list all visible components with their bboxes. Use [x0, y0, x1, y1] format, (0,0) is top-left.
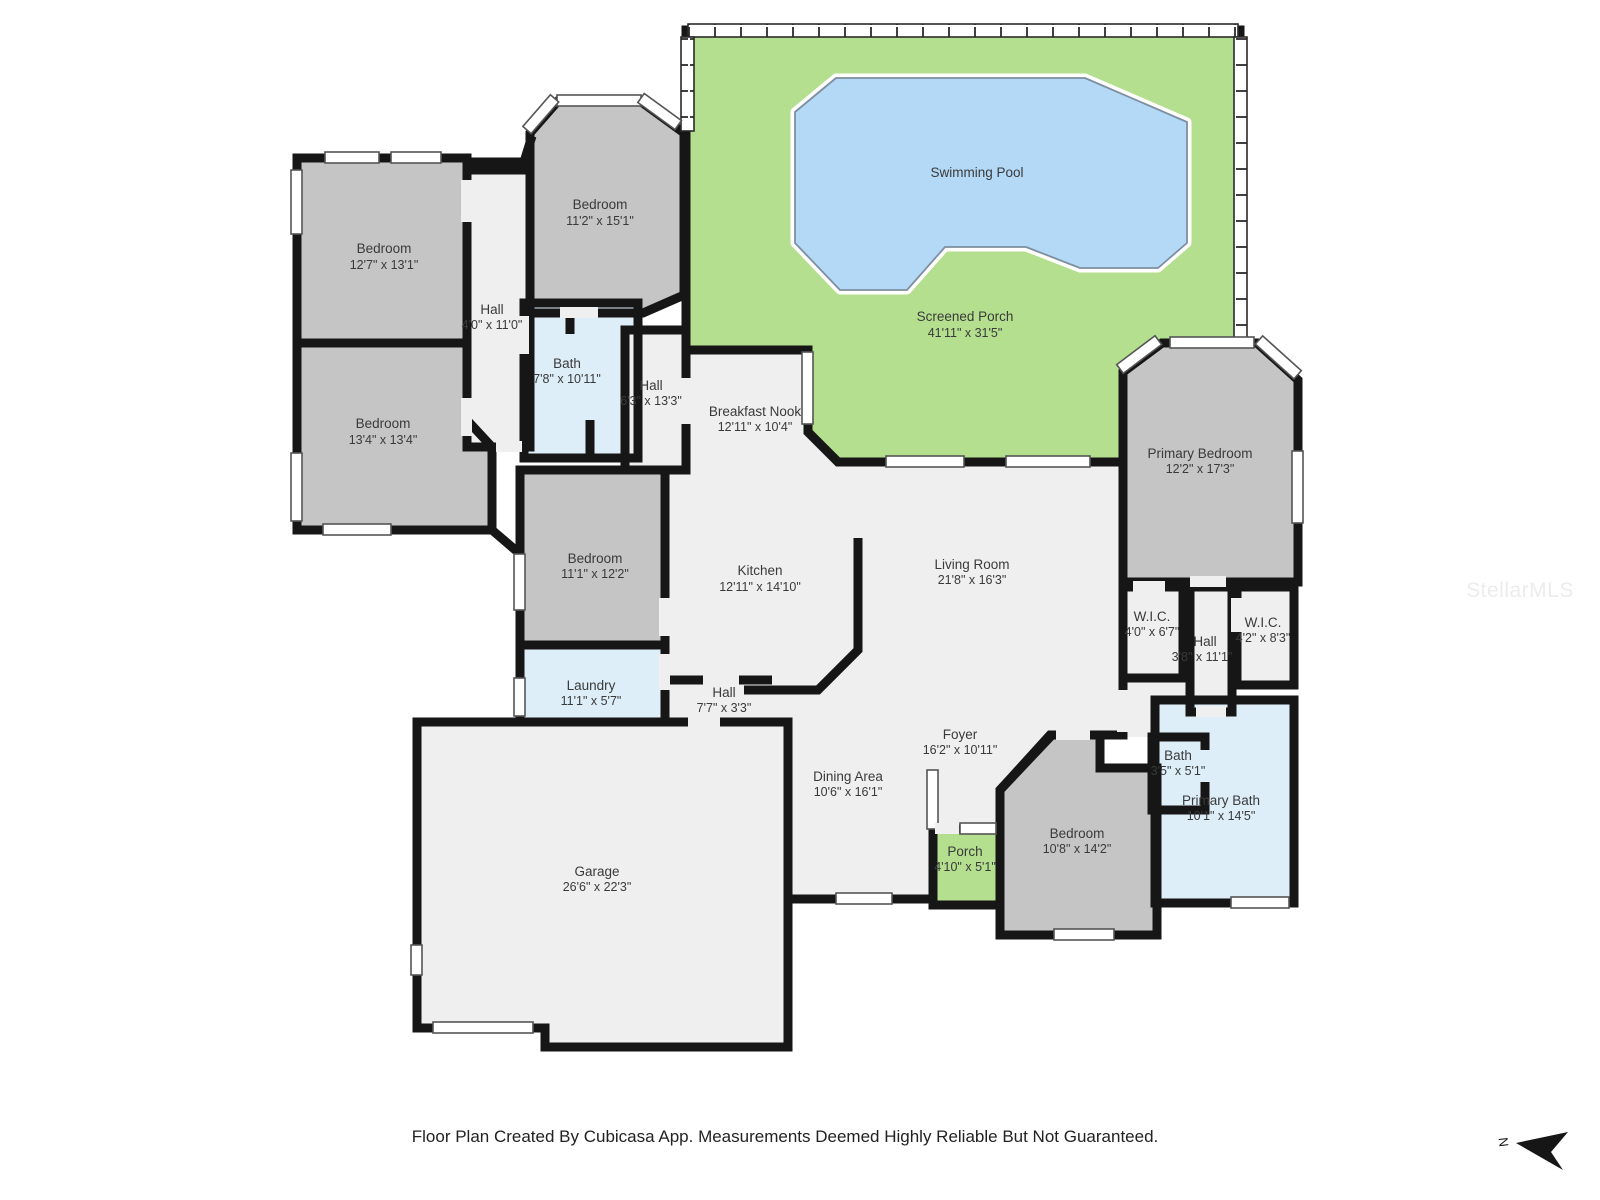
footer-disclaimer: Floor Plan Created By Cubicasa App. Meas…: [412, 1127, 1159, 1146]
label-bedroom-left-upper: Bedroom: [357, 241, 412, 256]
window: [1006, 456, 1090, 467]
window: [927, 770, 938, 829]
label-wic-left: W.I.C.: [1134, 609, 1171, 624]
label-screened-porch-dims: 41'11" x 31'5": [928, 326, 1003, 340]
label-bath-small: Bath: [1164, 748, 1192, 763]
window: [391, 152, 441, 163]
label-bath-left: Bath: [553, 356, 581, 371]
window: [557, 95, 641, 106]
north-arrow-icon: [1516, 1132, 1568, 1170]
label-wic-right-dims: 4'2" x 8'3": [1236, 631, 1291, 645]
label-hall-left: Hall: [480, 302, 503, 317]
label-breakfast-nook-dims: 12'11" x 10'4": [718, 420, 793, 434]
label-bedroom-right: Bedroom: [1050, 826, 1105, 841]
window: [1231, 897, 1289, 908]
north-label: N: [1495, 1136, 1511, 1147]
garage-door: [433, 1022, 533, 1033]
label-wic-right: W.I.C.: [1245, 615, 1282, 630]
label-breakfast-nook: Breakfast Nook: [709, 404, 802, 419]
window: [836, 893, 892, 904]
label-hall-small: Hall: [712, 685, 735, 700]
screen-wall-top: [688, 24, 1238, 37]
label-laundry: Laundry: [567, 678, 616, 693]
window: [1054, 929, 1114, 940]
label-hall-primary: Hall: [1193, 634, 1216, 649]
label-bedroom-left-upper-dims: 12'7" x 13'1": [350, 258, 419, 272]
stellar-mls-watermark: StellarMLS: [1466, 579, 1574, 602]
label-hall-center-dims: 6'3" x 13'3": [620, 394, 682, 408]
window: [411, 945, 422, 975]
floor-plan-canvas: Screened Porch 41'11" x 31'5" Swimming P…: [0, 0, 1600, 1200]
window: [1170, 337, 1254, 348]
label-bedroom-middle: Bedroom: [568, 551, 623, 566]
label-front-porch: Porch: [947, 844, 982, 859]
label-bedroom-top: Bedroom: [573, 197, 628, 212]
label-bath-left-dims: 7'8" x 10'11": [533, 372, 601, 386]
window: [514, 554, 525, 610]
label-dining-area: Dining Area: [813, 769, 883, 784]
label-foyer: Foyer: [943, 727, 978, 742]
label-screened-porch: Screened Porch: [917, 309, 1014, 324]
label-bedroom-right-dims: 10'8" x 14'2": [1043, 842, 1112, 856]
label-garage-dims: 26'6" x 22'3": [563, 880, 632, 894]
window: [886, 456, 964, 467]
screen-wall-left: [681, 37, 694, 131]
window: [291, 170, 302, 234]
floor-plan-page: Screened Porch 41'11" x 31'5" Swimming P…: [0, 0, 1600, 1200]
label-primary-bath-dims: 10'1" x 14'5": [1187, 809, 1256, 823]
label-living-room-dims: 21'8" x 16'3": [938, 573, 1007, 587]
window: [291, 453, 302, 521]
label-bedroom-top-dims: 11'2" x 15'1": [566, 214, 634, 228]
label-primary-bedroom-dims: 12'2" x 17'3": [1166, 462, 1235, 476]
label-primary-bath: Primary Bath: [1182, 793, 1260, 808]
label-bedroom-left-lower-dims: 13'4" x 13'4": [349, 433, 418, 447]
label-foyer-dims: 16'2" x 10'11": [923, 743, 998, 757]
label-hall-left-dims: 4'0" x 11'0": [462, 318, 523, 332]
label-hall-small-dims: 7'7" x 3'3": [697, 701, 752, 715]
label-dining-area-dims: 10'6" x 16'1": [814, 785, 883, 799]
label-bedroom-left-lower: Bedroom: [356, 416, 411, 431]
label-laundry-dims: 11'1" x 5'7": [561, 694, 622, 708]
label-wic-left-dims: 4'0" x 6'7": [1125, 625, 1180, 639]
label-bedroom-middle-dims: 11'1" x 12'2": [561, 567, 629, 581]
label-garage: Garage: [574, 864, 619, 879]
label-front-porch-dims: 4'10" x 5'1": [934, 860, 996, 874]
room-fills: [297, 30, 1298, 1047]
label-primary-bedroom: Primary Bedroom: [1147, 446, 1252, 461]
label-kitchen-dims: 12'11" x 14'10": [719, 580, 801, 594]
window: [960, 823, 996, 834]
label-hall-primary-dims: 3'8" x 11'1": [1172, 650, 1233, 664]
screen-wall-right: [1234, 37, 1247, 339]
label-kitchen: Kitchen: [737, 563, 782, 578]
label-living-room: Living Room: [934, 557, 1009, 572]
window: [323, 524, 391, 535]
window: [514, 678, 525, 716]
window: [1292, 451, 1303, 523]
label-hall-center: Hall: [639, 378, 662, 393]
window: [325, 152, 379, 163]
north-compass: N: [1495, 1132, 1568, 1170]
label-swimming-pool: Swimming Pool: [930, 165, 1023, 180]
label-bath-small-dims: 3'5" x 5'1": [1151, 764, 1206, 778]
window: [802, 352, 813, 424]
